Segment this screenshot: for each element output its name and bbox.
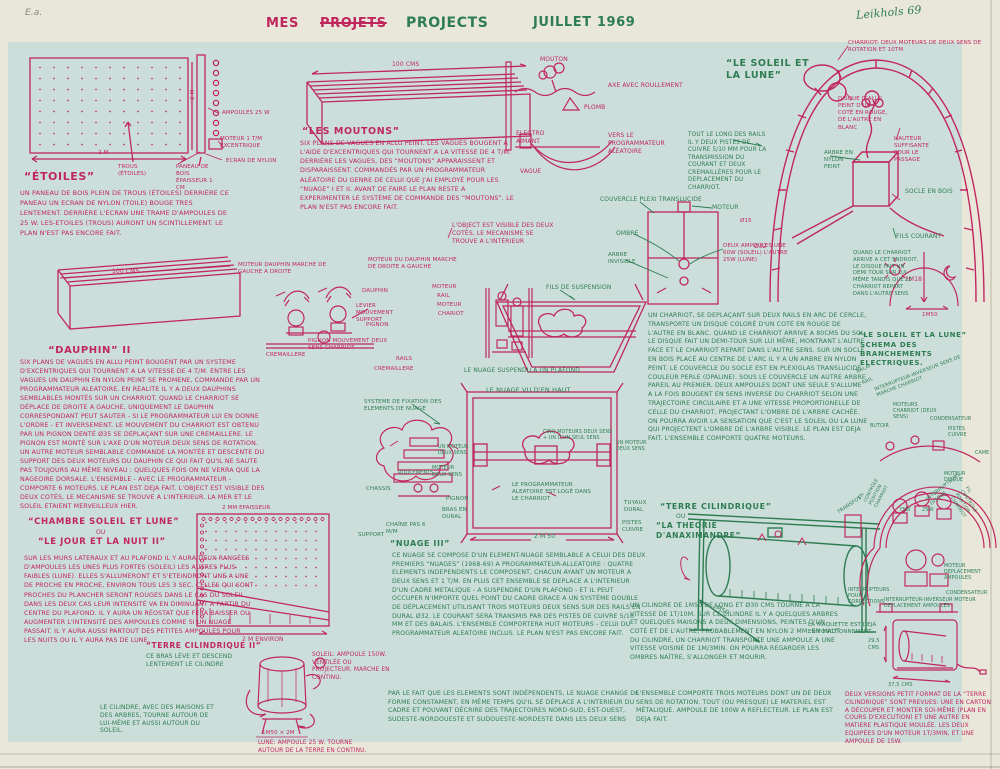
couvercle-leaders (626, 202, 723, 278)
terre2-soleil-note: SOLEIL: AMPOULE 150W. VENTILÉE OU PROJEC… (312, 652, 392, 682)
quand-charriot-note: QUAND LE CHARRIOT ARRIVE A CET ENDROIT, … (853, 250, 919, 297)
cremaillere2-label: CREMAILLERE (374, 366, 414, 373)
butoir-label: BUTOIR (870, 424, 889, 430)
nuage3-body: CE NUAGE SE COMPOSE D'UN ELEMENT-NUAGE S… (392, 552, 646, 639)
deux-ampoules-label: DEUX AMPOULES UNE 60W (SOLEIL) L'AUTRE 2… (723, 243, 791, 264)
watt25-label: 25W (922, 507, 934, 514)
terre2-title: “TERRE CILINDRIQUE II” (146, 641, 261, 651)
terre-cil-title1: “TERRE CILINDRIQUE” (660, 502, 772, 512)
nuage3-title: “NUAGE III” (390, 539, 450, 549)
axe-roulement-label: AXE AVEC ROULLEMENT (608, 82, 708, 90)
moteur2-label: MOTEUR (437, 302, 461, 309)
dauphin-title: “DAUPHIN” II (48, 344, 131, 357)
nuage-cadre-sketch (461, 383, 623, 543)
soleil-lune-title: “LE SOLEIL ET LA LUNE” (726, 58, 818, 83)
electro-aimant-label: ELECTRO AIMANT (516, 130, 556, 146)
pignon-mouvement-label: PIGNON MOUVEMENT DEUX SENS CHARRIOT (308, 338, 392, 352)
panel-hole-row-top (200, 515, 326, 523)
cadre-dim: 2 M 50 (534, 533, 555, 541)
epaisseur-label: 2 MM EPAISSEUR (222, 505, 270, 512)
hauteur-label: HAUTEUR SUFFISANTE POUR LE PASSAGE (894, 136, 936, 165)
title-projets-struck: PROJETS (320, 16, 387, 33)
versions-note: DEUX VERSIONS PETIT FORMAT DE LA “TERRE … (845, 692, 997, 746)
etoiles-label-moteur: MOTEUR 1 T/M EXCENTRIQUE (220, 136, 272, 150)
maquette-height-dim: 29,5 CMS (868, 638, 892, 651)
chambre-body: SUR LES MURS LATERAUX ET AU PLAFOND IL Y… (24, 554, 254, 645)
arbre-nylon-label: ARBRE EN NYLON PEINT (824, 150, 860, 171)
etoiles-dots (33, 62, 183, 148)
terre2-cilindre-note: LE CILINDRE, AVEC DES MAISONS ET DES ARB… (100, 704, 220, 735)
moutons-body: SIX PLANS DE VAGUES EN ALLU PEINT. LES V… (300, 139, 514, 212)
moteur-droite-gauche-label: MOTEUR DU DAUPHIN MARCHE DE DROITE A GAU… (368, 257, 464, 271)
interrupteurs-corrections-label: INTERRUPTEURS POUR CORRECTIONS (848, 588, 890, 607)
cremaillere1-label: CREMAILLERE (266, 352, 306, 359)
charriot-label: CHARRIOT: DEUX MOTEURS DE DEUX SENS DE R… (848, 40, 982, 54)
title-projects: PROJECTS (406, 14, 488, 32)
maquette-sketch (884, 620, 986, 682)
etoiles-dim-height: 2 M (190, 90, 197, 100)
support-label: SUPPORT (358, 532, 384, 539)
nuage-haut-caption: LE NUAGE VU D'EN HAUT (486, 386, 571, 394)
moteur-label: MOTEUR (712, 204, 739, 212)
condensateur-label: CONDENSATEUR (930, 417, 971, 423)
arch-width-dim: 1M50 (922, 312, 938, 319)
plomb-label: PLOMB (584, 104, 605, 112)
moteur-deux-sens-label: MOTEUR DEUX SENS (432, 465, 468, 478)
etoiles-title: “ÉTOILES” (24, 170, 95, 184)
etoiles-label-ecran: ECRAN DE NYLON (226, 158, 288, 165)
terre-cil-title2: “LA THEORIE D'ANAXIMANDRE” (656, 521, 748, 541)
chambre-ou: OU (96, 529, 105, 537)
dauphin-dim: 100 CMS (112, 268, 139, 276)
moutons-note: L'OBJECT EST VISIBLE DES DEUX COTÉS, LE … (452, 222, 560, 245)
pignon-nuage-label: PIGNON (446, 496, 468, 503)
condensateur2-label: CONDENSATEUR (946, 591, 987, 597)
terre2-lune-note: LUNE: AMPOULE 25 W. TOURNE AUTOUR DE LA … (258, 740, 376, 755)
fils-courant-label: FILS COURANT (896, 233, 941, 241)
moutons-dim: 100 CMS (392, 61, 419, 69)
schema-title: “LE SOLEIL ET LA LUNE” (858, 331, 967, 340)
etoiles-label-ampoules: AMPOULES 25 W (222, 110, 284, 117)
moutons-title: “LES MOUTONS” (302, 126, 400, 138)
bras-dural-label: BRAS EN DURAL (442, 507, 478, 521)
terre-cil-body2: L'ENSEMBLE COMPORTE TROIS MOTEURS DONT U… (636, 690, 846, 725)
mouton-label: MOUTON (540, 56, 568, 64)
un-moteur-left-label: UN MOTEUR DEUX SENS (438, 445, 474, 457)
programmateur-note: LE PROGRAMMATEUR ALEATOIRE EST LOGÉ DANS… (512, 482, 592, 503)
disque-label: DISQUE D'ALLU PEINT D'UN COTÉ EN ROUGE, … (838, 96, 888, 132)
chariot-label: CHARIOT (438, 311, 464, 318)
socle-bois-label: SOCLE EN BOIS (905, 188, 967, 196)
edition-mark: E.a. (25, 8, 42, 20)
title-date: JUILLET 1969 (533, 15, 635, 32)
couvercle-sketch (648, 202, 718, 304)
rail-label: RAIL (437, 293, 450, 300)
terre2-dim: 1M50 × 2M (262, 730, 295, 737)
maquette-note: LA MAQUETTE EST DEJA EN FONCTIONNEMENT (808, 622, 880, 636)
interrupteur-inverseur2-label: INTERRUPTEUR-INVERSEUR MOTEUR DEPLACEMEN… (884, 598, 1000, 610)
etoiles-dim-width: 2 M (98, 150, 108, 157)
dauphin-sk-label: DAUPHIN (362, 288, 388, 295)
title-mes: MES (266, 16, 299, 33)
rails-label: RAILS (396, 356, 412, 363)
diam15-label: Ø15 (740, 218, 752, 225)
mouton-wave-sketch (506, 62, 615, 170)
nuage-plafond-caption: LE NUAGE SUSPENDU A UN PLAFOND (464, 367, 580, 375)
vers-programmateur-label: VERS LE PROGRAMMATEUR ALÉATOIRE (608, 132, 680, 155)
chassis-label: CHASSIS (366, 486, 391, 493)
dauphin-mech-right (486, 288, 532, 358)
cloud-detail-sketch (377, 420, 459, 496)
rails-note: TOUT LE LONG DES RAILS IL Y DEUX PISTES … (688, 132, 772, 192)
chambre-title1: “CHAMBRE SOLEIL ET LUNE” (28, 517, 179, 528)
moteur1-label: MOTEUR (432, 284, 456, 291)
dauphin-body: SIX PLANS DE VAGUES EN ALLU PEINT BOUGEN… (20, 358, 266, 511)
dauphin-stack-sketch (58, 257, 240, 329)
chambre-title2: “LE JOUR ET LA NUIT II” (38, 537, 166, 548)
fils-suspension-label: FILS DE SUSPENSION (546, 284, 611, 292)
etoiles-body: UN PANEAU DE BOIS PLEIN DE TROUS (ÉTOILE… (20, 188, 230, 238)
moteur-deplacement-ampoules-label: MOTEUR DEPLACEMENT AMPOULES (944, 564, 990, 583)
pignon-label: PIGNON (366, 322, 388, 329)
couvercle-label: COUVERCLE PLEXI TRANSLUCIDE (600, 196, 750, 204)
vague-label: VAGUE (520, 168, 541, 176)
roulements-label: ROULEMENTS (398, 470, 434, 477)
watt75-label: 75W (899, 507, 911, 514)
ombre-label: OMBRE (616, 230, 639, 238)
maquette-width-dim: 37,5 CMS (888, 682, 913, 689)
arc-paragraph: UN CHARRIOT, SE DEPLAÇANT SUR DEUX RAILS… (648, 312, 868, 444)
came-label: CAME (975, 451, 989, 457)
etoiles-label-trous: TROUS (ÉTOILES) (118, 164, 166, 178)
arbre-invisible-label: ARBRE INVISIBLE (608, 252, 644, 266)
terre-cil-ou: OU (676, 513, 685, 521)
terre2-bras-note: CE BRAS LÈVE ET DESCEND LENTEMENT LE CIL… (146, 653, 258, 669)
chaine-label: CHAÎNE PAS 6 M/M (386, 522, 430, 536)
cinq-moteurs-label: CINQ MOTEURS DEUX SENS + UN D'UN SEUL SE… (543, 430, 617, 442)
nuage3-body2: PAR LE FAIT QUE LES ELEMENTS SONT INDÉPE… (388, 690, 648, 725)
moteur-gauche-droite-label: MOTEUR DAUPHIN MARCHE DE GAUCHE A DROITE (238, 262, 330, 276)
pistes-cuivre-schema-label: PISTES CUIVRE (948, 427, 980, 439)
systeme-fixation-label: SYSTEME DE FIXATION DES ELEMENTS DE NUAG… (364, 399, 456, 413)
artwork-sheet: { "colors":{"red":"#c0275e","green":"#2e… (0, 0, 1000, 769)
